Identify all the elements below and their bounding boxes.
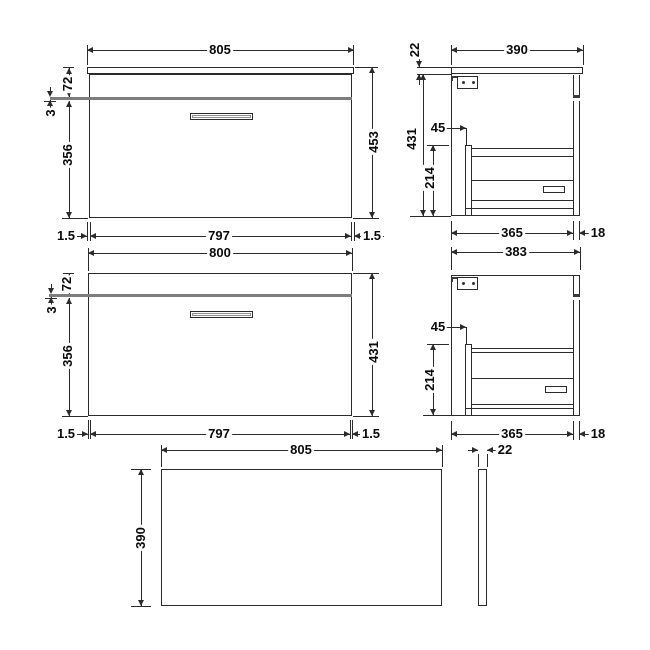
arrowhead — [436, 447, 442, 453]
dim-label-carcass-depth: 383 — [503, 245, 529, 259]
drawer-handle-inset — [192, 115, 251, 118]
back-panel-line — [573, 75, 574, 95]
arrowhead — [161, 447, 167, 453]
dim-label-carcass-width: 800 — [207, 246, 233, 260]
worktop-outline — [451, 67, 583, 74]
arrowhead — [81, 233, 87, 239]
arrowhead — [345, 233, 351, 239]
tick — [353, 273, 379, 274]
arrowhead — [48, 288, 54, 294]
extension-line — [487, 454, 488, 467]
back-panel-joint — [573, 294, 580, 297]
dim-label-top-height: 72 — [60, 275, 74, 293]
worktop-plan-outline — [161, 469, 442, 606]
bottom-panel-line — [465, 408, 573, 409]
cabinet-bottom-line — [451, 415, 580, 416]
arrowhead — [82, 431, 88, 437]
dim-label-worktop-depth: 390 — [134, 525, 148, 551]
arrowhead — [354, 233, 360, 239]
drawer-box-line — [471, 148, 573, 149]
cabinet-bottom-line — [451, 215, 580, 216]
arrowhead — [579, 431, 585, 437]
dim-label-box-height: 214 — [423, 367, 437, 393]
screw-hole — [472, 81, 475, 84]
drawer-front-cap — [465, 145, 471, 146]
drawer-box-line — [471, 348, 573, 349]
arrowhead — [66, 68, 72, 74]
arrowhead — [369, 410, 375, 416]
arrowhead — [88, 250, 94, 256]
extension-line — [417, 67, 451, 68]
arrowhead — [346, 250, 352, 256]
arrowhead — [472, 447, 478, 453]
arrowhead — [47, 91, 53, 97]
extension-line — [580, 247, 581, 270]
drawer-front-line — [465, 145, 466, 215]
arrowhead — [416, 61, 422, 67]
arrowhead — [451, 249, 457, 255]
drawer-box-line — [471, 180, 573, 181]
tick — [62, 218, 88, 219]
arrowhead — [369, 212, 375, 218]
arrowhead — [352, 431, 358, 437]
bottom-panel-line — [465, 208, 573, 209]
dim-label-drawer-height: 356 — [61, 343, 75, 369]
dim-label-worktop-depth: 390 — [504, 43, 530, 57]
screw-hole — [472, 282, 475, 285]
dim-label-gap: 3 — [45, 304, 59, 315]
cabinet-top-line — [451, 275, 580, 276]
dim-label-body-depth: 365 — [499, 427, 525, 441]
arrowhead — [430, 145, 436, 151]
back-panel-line — [573, 101, 574, 216]
arrowhead — [577, 47, 583, 53]
dim-label-carcass-height: 431 — [405, 126, 419, 152]
gap-band — [49, 294, 352, 297]
dim-label-carcass-height: 431 — [367, 339, 381, 365]
back-panel-line — [573, 300, 574, 415]
back-rail-line — [579, 101, 580, 216]
dim-label-gap: 3 — [44, 107, 58, 118]
front-panel-line — [451, 74, 452, 216]
dim-label-overall-height: 453 — [367, 129, 381, 155]
dim-label-box-height: 214 — [423, 165, 437, 191]
arrowhead — [451, 47, 457, 53]
arrowhead — [574, 249, 580, 255]
tick — [131, 606, 151, 607]
extension-line — [87, 222, 88, 241]
arrowhead — [420, 74, 426, 80]
dim-label-drawer-width: 797 — [206, 229, 232, 243]
worktop-edge-profile — [478, 469, 487, 606]
arrowhead — [369, 273, 375, 279]
tick — [44, 101, 56, 102]
dim-label-back-offset: 18 — [589, 427, 607, 441]
drawing-sheet: 805 72 3 356 453 — [0, 0, 650, 650]
arrowhead — [138, 469, 144, 475]
arrowhead — [430, 344, 436, 350]
arrowhead — [87, 47, 93, 53]
back-rail-line — [579, 276, 580, 294]
screw-hole — [462, 282, 465, 285]
arrowhead — [138, 600, 144, 606]
arrowhead — [369, 67, 375, 73]
arrowhead — [430, 409, 436, 415]
cabinet-outline — [89, 74, 352, 218]
arrowhead — [567, 431, 573, 437]
tick — [353, 416, 379, 417]
drawer-box-line — [471, 156, 573, 157]
dim-label-left-edge: 1.5 — [55, 229, 77, 243]
bracket-hook — [451, 277, 453, 282]
extension-line — [351, 222, 352, 241]
arrowhead — [451, 431, 457, 437]
arrowhead — [567, 230, 573, 236]
gap-band — [50, 97, 352, 100]
drawer-box-line — [471, 352, 573, 353]
drawer-handle — [190, 311, 253, 318]
dimension-line — [423, 74, 424, 216]
front-panel-line — [451, 275, 452, 415]
back-rail-line — [579, 300, 580, 415]
arrowhead — [66, 298, 72, 304]
arrowhead — [90, 233, 96, 239]
extension-line — [573, 221, 574, 240]
arrowhead — [487, 447, 493, 453]
dim-label-left-edge: 1.5 — [55, 427, 77, 441]
drawer-front-line — [465, 344, 466, 415]
drawer-handle — [190, 113, 253, 120]
arrowhead — [66, 101, 72, 107]
dim-label-top-height: 72 — [61, 75, 75, 93]
tick — [423, 415, 451, 416]
extension-line — [88, 420, 89, 439]
back-rail-line — [579, 75, 580, 95]
extension-line — [583, 45, 584, 65]
bracket-hook — [451, 76, 453, 81]
extension-line — [478, 454, 479, 467]
extension-line — [350, 420, 351, 439]
arrowhead — [451, 230, 457, 236]
tick — [45, 298, 57, 299]
drawer-front-cap — [465, 344, 471, 345]
drawer-box-line — [471, 404, 573, 405]
back-panel-line — [573, 276, 574, 294]
dim-label-right-edge: 1.5 — [360, 427, 382, 441]
arrowhead — [344, 431, 350, 437]
dim-label-drawer-setback: 45 — [429, 320, 447, 334]
dim-label-drawer-setback: 45 — [429, 121, 447, 135]
dim-label-back-offset: 18 — [589, 226, 607, 240]
extension-line — [466, 327, 467, 344]
drawer-runner-detail — [545, 386, 567, 393]
back-panel-joint — [573, 95, 580, 98]
dim-label-worktop-width: 805 — [288, 443, 314, 457]
arrowhead — [579, 230, 585, 236]
extension-line — [573, 421, 574, 440]
drawer-handle-inset — [192, 313, 251, 316]
extension-line — [466, 128, 467, 145]
screw-hole — [462, 81, 465, 84]
dim-label-right-edge: 1.5 — [361, 229, 383, 243]
dim-label-worktop-thickness: 22 — [408, 41, 422, 59]
arrowhead — [348, 47, 354, 53]
extension-line — [352, 248, 353, 271]
drawer-box-line — [471, 200, 573, 201]
arrowhead — [90, 431, 96, 437]
dim-label-body-depth: 365 — [499, 226, 525, 240]
drawer-runner-detail — [543, 186, 565, 193]
dim-label-drawer-height: 356 — [61, 142, 75, 168]
dim-label-drawer-width: 797 — [206, 427, 232, 441]
tick — [353, 218, 379, 219]
dim-label-worktop-thickness: 22 — [496, 443, 514, 457]
tick — [410, 216, 451, 217]
tick — [62, 416, 88, 417]
arrowhead — [430, 210, 436, 216]
drawer-box-line — [471, 378, 573, 379]
dim-label-worktop-width: 805 — [207, 43, 233, 57]
extension-line — [442, 445, 443, 467]
worktop-outline — [87, 67, 354, 74]
